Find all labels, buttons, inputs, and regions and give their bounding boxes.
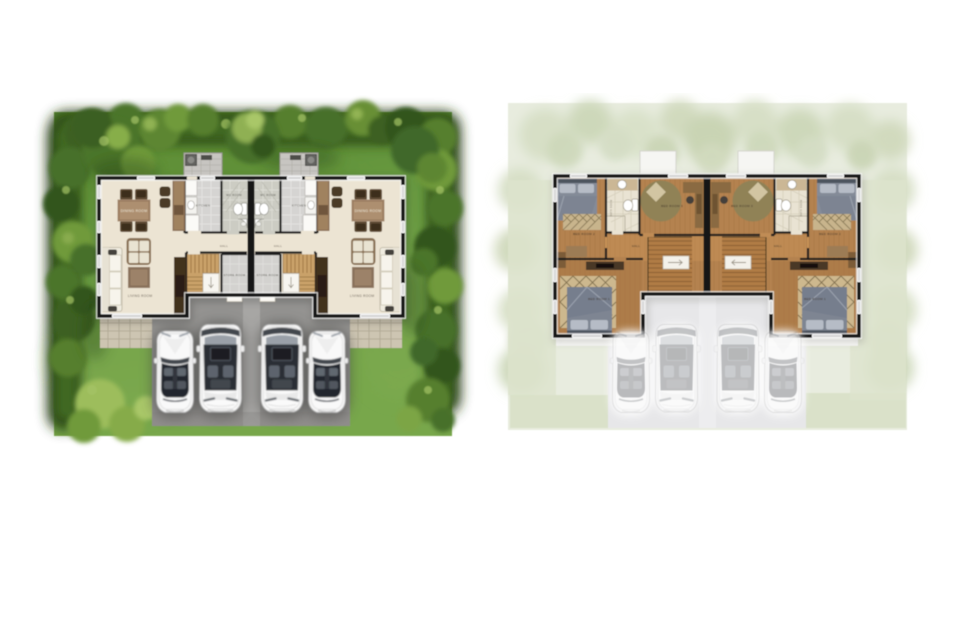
svg-text:BATH ROOM: BATH ROOM bbox=[800, 200, 803, 217]
svg-text:LIVING ROOM: LIVING ROOM bbox=[350, 294, 375, 298]
svg-text:BED ROOM 3: BED ROOM 3 bbox=[661, 204, 683, 208]
svg-text:WC ROOM: WC ROOM bbox=[226, 193, 242, 197]
svg-text:KITCHEN: KITCHEN bbox=[196, 204, 210, 208]
svg-text:DINING ROOM: DINING ROOM bbox=[121, 209, 148, 213]
svg-text:BED ROOM 2: BED ROOM 2 bbox=[573, 232, 595, 236]
svg-text:HALL: HALL bbox=[274, 244, 282, 248]
svg-text:BED ROOM 2: BED ROOM 2 bbox=[819, 232, 841, 236]
svg-text:LIVING ROOM: LIVING ROOM bbox=[128, 294, 153, 298]
svg-text:STORE ROOM: STORE ROOM bbox=[256, 273, 278, 277]
svg-text:DINING ROOM: DINING ROOM bbox=[355, 209, 382, 213]
svg-text:BED ROOM 1: BED ROOM 1 bbox=[804, 297, 826, 301]
svg-text:HALL: HALL bbox=[220, 244, 228, 248]
svg-text:HALL: HALL bbox=[774, 244, 782, 248]
svg-text:STORE ROOM: STORE ROOM bbox=[223, 273, 245, 277]
svg-text:WC ROOM: WC ROOM bbox=[260, 193, 276, 197]
svg-text:HALL: HALL bbox=[632, 244, 640, 248]
svg-text:BED ROOM 3: BED ROOM 3 bbox=[731, 204, 753, 208]
svg-text:BED ROOM 1: BED ROOM 1 bbox=[588, 297, 610, 301]
svg-text:KITCHEN: KITCHEN bbox=[292, 204, 306, 208]
svg-text:BATH ROOM: BATH ROOM bbox=[610, 200, 613, 217]
